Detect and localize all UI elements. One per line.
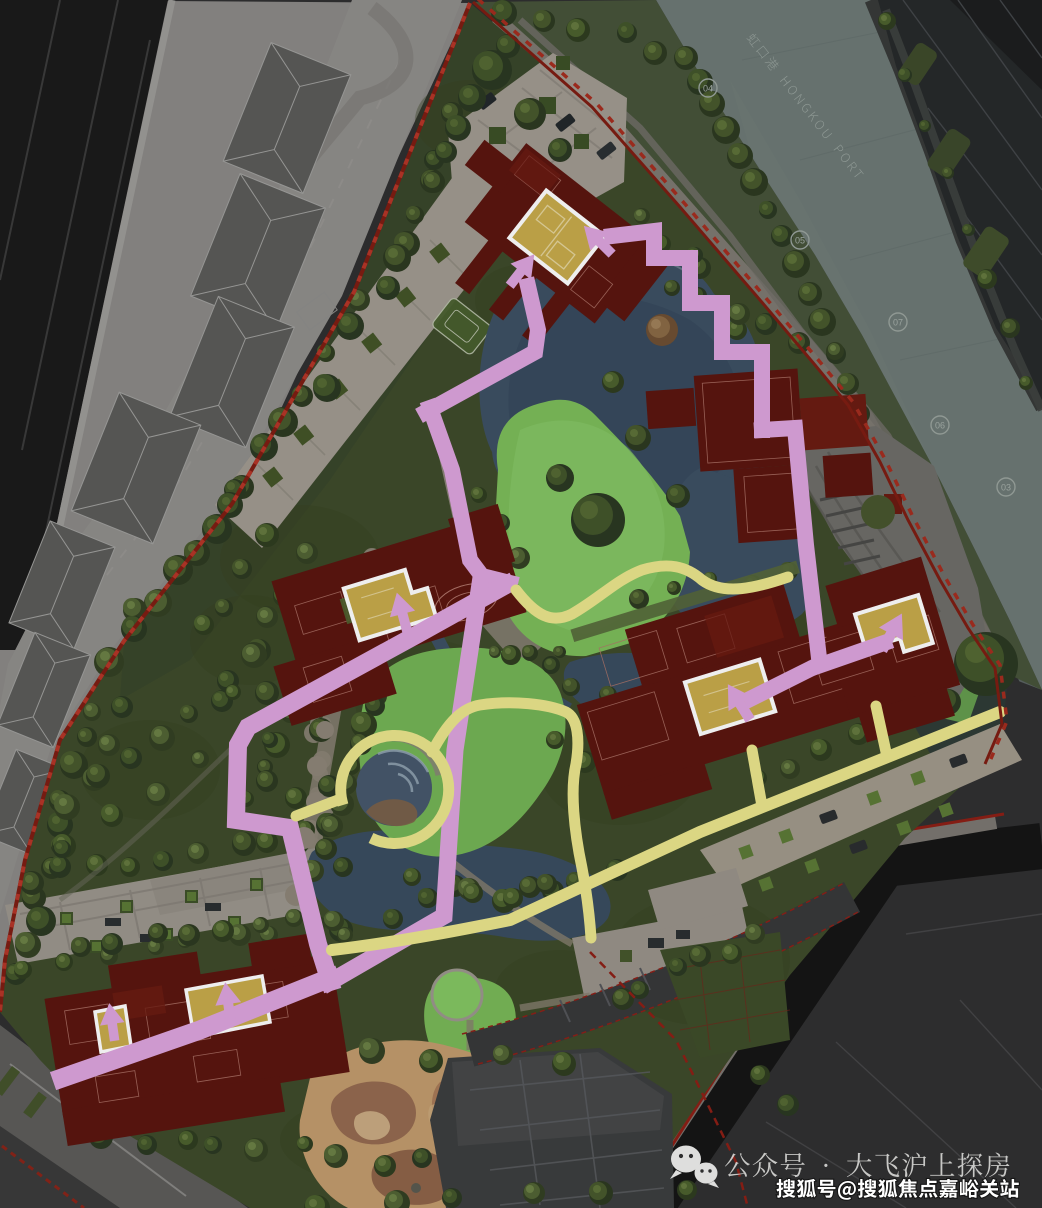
svg-text:03: 03 — [1001, 483, 1011, 493]
svg-text:07: 07 — [893, 318, 903, 328]
svg-text:06: 06 — [935, 421, 945, 431]
svg-text:05: 05 — [795, 236, 805, 246]
svg-text:04: 04 — [703, 84, 713, 94]
